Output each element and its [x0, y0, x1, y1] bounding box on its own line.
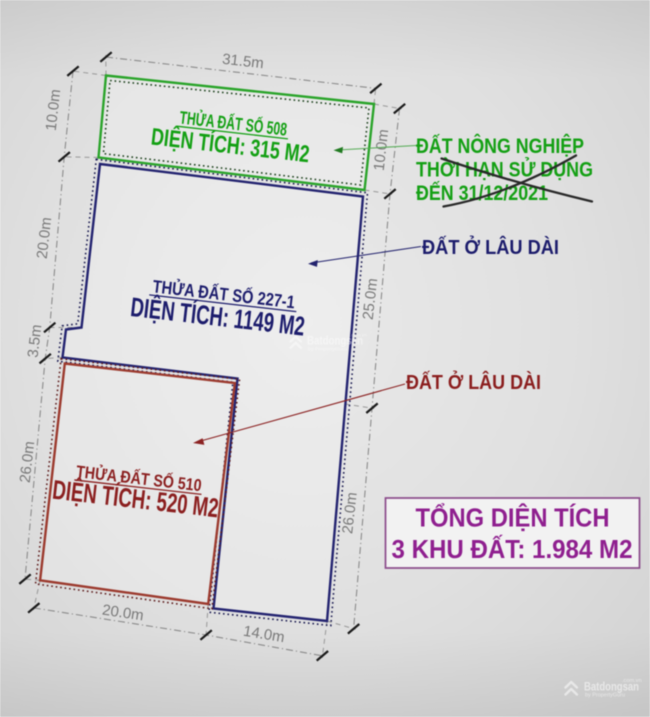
svg-text:.com.vn: .com.vn	[622, 678, 642, 684]
svg-text:by PropertyGuru: by PropertyGuru	[308, 347, 347, 353]
svg-text:by PropertyGuru: by PropertyGuru	[585, 693, 625, 699]
svg-text:3 KHU ĐẤT: 1.984 M2: 3 KHU ĐẤT: 1.984 M2	[392, 534, 633, 564]
svg-text:TỔNG DIỆN TÍCH: TỔNG DIỆN TÍCH	[416, 503, 610, 533]
svg-text:ĐẤT Ở LÂU DÀI: ĐẤT Ở LÂU DÀI	[422, 235, 559, 259]
svg-text:ĐẤT NÔNG NGHIỆP: ĐẤT NÔNG NGHIỆP	[416, 134, 584, 158]
svg-text:ĐẤT Ở LÂU DÀI: ĐẤT Ở LÂU DÀI	[406, 370, 541, 394]
svg-text:.com.vn: .com.vn	[350, 334, 367, 339]
